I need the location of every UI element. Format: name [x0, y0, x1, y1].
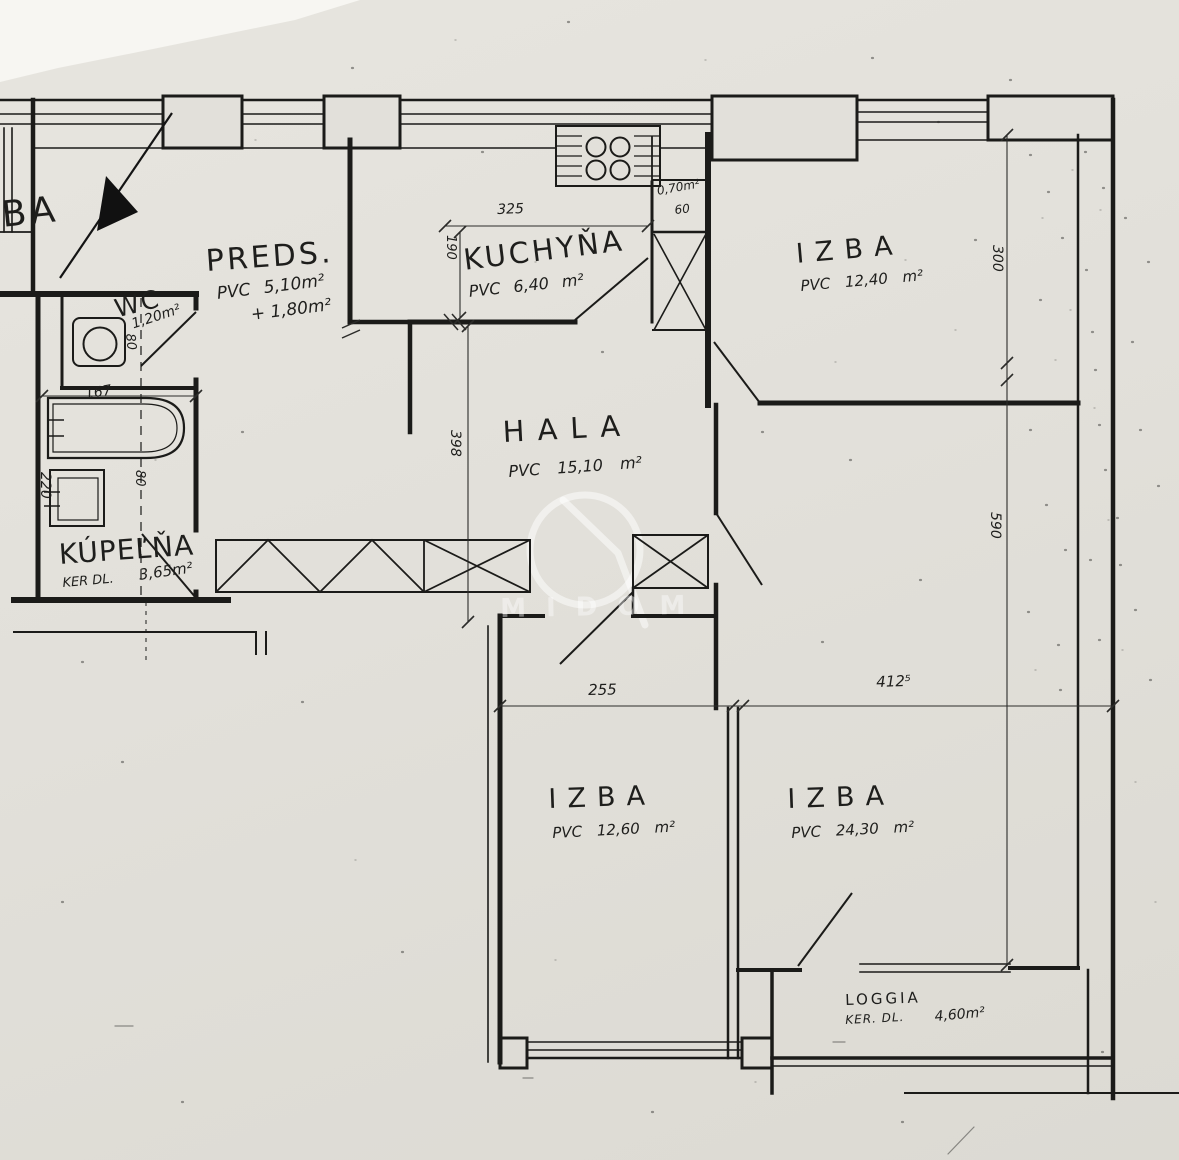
- dim-80-bath: 80: [133, 470, 146, 487]
- dim-590: 590: [988, 512, 1002, 539]
- paper-speckles: [62, 22, 1159, 1154]
- area-label-loggia: 4,60m²: [934, 1006, 985, 1024]
- door-leaves: [141, 258, 852, 966]
- floorplan-drawing: [0, 0, 1179, 1160]
- dim-325: 325: [497, 202, 524, 217]
- dim-220: 220: [38, 472, 52, 499]
- torn-paper-edge: [0, 0, 360, 82]
- room-label-partial-ba: BA: [0, 192, 61, 234]
- dim-255: 255: [588, 683, 617, 698]
- watermark-text: MIDOM: [500, 592, 706, 622]
- dim-412: 412⁵: [876, 674, 911, 690]
- stove-icon: [556, 126, 660, 186]
- floor-label-loggia: KER. DL.: [845, 1011, 905, 1026]
- room-label-izba-bottom-left: IZBA: [548, 782, 656, 813]
- dim-80-wc: 80: [123, 333, 138, 351]
- dim-398: 398: [448, 430, 462, 457]
- dim-300: 300: [990, 245, 1004, 272]
- room-label-izba-bottom-right: IZBA: [787, 782, 895, 813]
- toilet-bowl-icon: [84, 328, 117, 361]
- dim-190: 190: [444, 235, 457, 260]
- room-label-loggia: LOGGIA: [845, 990, 921, 1008]
- dim-label-shaft-60: 60: [674, 202, 690, 216]
- faucet-icon: [48, 420, 64, 436]
- bathroom-fixtures: [44, 298, 184, 660]
- room-label-hala: HALA: [502, 411, 634, 447]
- floor-plan: BA PREDS. PVC 5,10m² + 1,80m² KUCHYŇA PV…: [0, 0, 1179, 1160]
- entrance-arrow: [60, 113, 172, 278]
- wardrobes: [216, 535, 708, 592]
